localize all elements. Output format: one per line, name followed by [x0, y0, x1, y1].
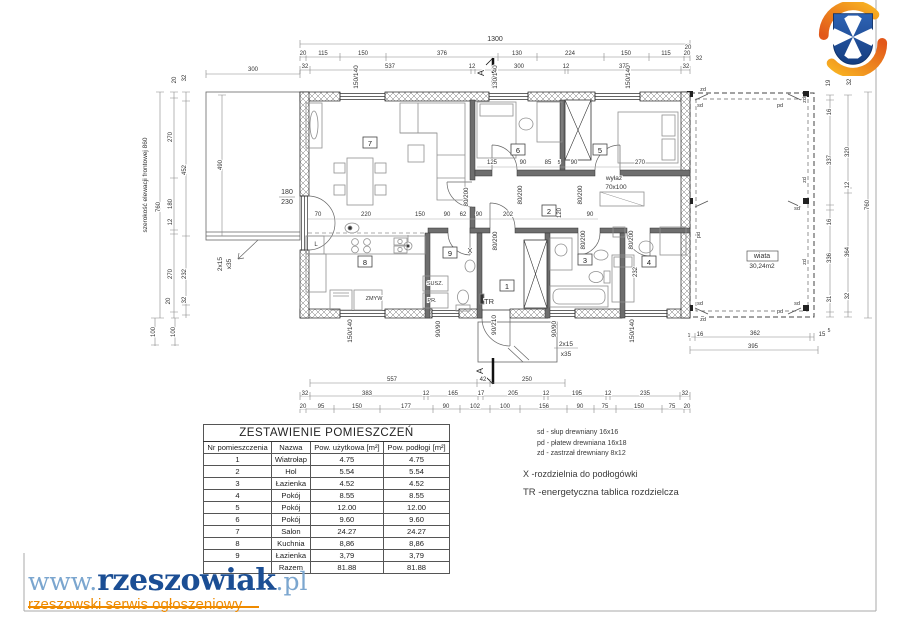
logo-www: www. — [28, 567, 97, 596]
dim-label: 102 — [470, 404, 481, 410]
dim-label: 12 — [168, 218, 174, 225]
bed — [618, 112, 678, 163]
table-cell: Pokój — [272, 490, 311, 502]
dim-label: 95 — [318, 404, 325, 410]
dim-label: pd — [777, 309, 783, 315]
table-cell: 1 — [204, 454, 272, 466]
dim-label: 90/90 — [551, 320, 558, 337]
legend-tr: TR -energetyczna tablica rozdzielcza — [523, 487, 679, 498]
dim-label: 32 — [182, 74, 188, 81]
carport-braces — [695, 94, 801, 314]
dim-label: A — [475, 368, 485, 374]
table-cell: 3,79 — [384, 550, 450, 562]
dim-label: 100 — [500, 404, 511, 410]
dim-label: X — [468, 248, 473, 255]
dim-label: 150 — [415, 212, 426, 218]
logo-name: rzeszowiak — [97, 563, 275, 598]
dim-label: sd — [794, 206, 800, 212]
dim-label: 20 — [166, 297, 172, 304]
dim-label: 42 — [480, 377, 487, 383]
dim-label: 205 — [508, 391, 519, 397]
table-cell: 8 — [204, 538, 272, 550]
table-cell: 9.60 — [310, 514, 383, 526]
dim-label: 362 — [750, 331, 761, 337]
dim-label: 20 — [684, 51, 691, 57]
dim-label: 32 — [683, 64, 690, 70]
dim-label: 90 — [476, 212, 483, 218]
dim-label: PR. — [427, 298, 437, 304]
dim-label: 90 — [443, 404, 450, 410]
dim-label: SUSZ. — [427, 281, 444, 287]
table-cell: 7 — [204, 526, 272, 538]
dim-label: 31 — [827, 295, 833, 302]
legend-x: X -rozdzielnia do podłogówki — [523, 469, 679, 479]
legend-sd: sd - słup drewniany 16x16 — [537, 428, 679, 439]
dining-table — [347, 158, 373, 205]
chair — [639, 241, 653, 253]
dim-label: ZMYW — [366, 296, 384, 302]
table-cell: 2 — [204, 466, 272, 478]
dim-label: 230 — [281, 199, 293, 206]
dim-label: 20 — [172, 76, 178, 83]
dim-label: pd — [696, 232, 702, 238]
dim-label: 32 — [696, 56, 703, 62]
table-cell: 4.52 — [310, 478, 383, 490]
legend-pd: pd - płatew drewniana 16x18 — [537, 439, 679, 450]
table-cell: Pokój — [272, 502, 311, 514]
table-cell: 9.60 — [384, 514, 450, 526]
dim-label: 20 — [685, 45, 692, 51]
dim-label: 80/200 — [492, 231, 499, 250]
room-number: 1 — [505, 282, 509, 291]
table-cell: 8.55 — [310, 490, 383, 502]
dim-label: 202 — [503, 212, 514, 218]
table-cell: 5.54 — [384, 466, 450, 478]
dim-label: 177 — [401, 404, 412, 410]
dim-label: 80/200 — [577, 185, 584, 204]
dim-label: 15 — [819, 332, 826, 338]
dim-label: zd — [700, 317, 706, 323]
table-row: 1Wiatrołap4.754.75 — [204, 454, 450, 466]
dim-label: 383 — [362, 391, 373, 397]
toilet — [458, 290, 469, 304]
dim-label: 100 — [171, 326, 177, 337]
table-cell: 4.75 — [384, 454, 450, 466]
dim-label: sd — [794, 301, 800, 307]
dim-label: x35 — [226, 258, 233, 269]
dim-label: 115 — [318, 51, 328, 57]
dim-label: sd — [697, 103, 703, 109]
table-title: ZESTAWIENIE POMIESZCZEŃ — [204, 425, 450, 442]
dim-label: 250 — [522, 377, 533, 383]
sink — [594, 250, 608, 260]
dim-label: 5 — [828, 328, 831, 334]
logo-tld: .pl — [276, 567, 308, 596]
dim-label: pd — [777, 103, 783, 109]
dim-label: szerokość elewacji frontowej 860 — [142, 137, 149, 232]
dim-label: 150/140 — [625, 65, 632, 89]
dim-label: 2x15 — [217, 257, 224, 271]
table-column-header: Nazwa — [272, 442, 311, 454]
table-row: 2Hol5.545.54 — [204, 466, 450, 478]
dimension-lines — [151, 40, 872, 413]
dim-label: 156 — [539, 404, 550, 410]
dim-label: 115 — [661, 51, 671, 57]
dim-label: 90 — [577, 404, 584, 410]
dim-label: 90 — [571, 160, 578, 166]
legend: sd - słup drewniany 16x16 pd - płatew dr… — [523, 428, 679, 498]
table-cell: 6 — [204, 514, 272, 526]
dim-label: 300 — [248, 67, 259, 73]
dim-label: 12 — [563, 64, 570, 70]
dim-label: 85 — [545, 160, 552, 166]
table-row: 9Łazienka3,793,79 — [204, 550, 450, 562]
dim-label: 270 — [168, 131, 174, 142]
dim-label: 232 — [182, 268, 188, 279]
room-number: 4 — [647, 258, 651, 267]
room-number: 3 — [583, 256, 587, 265]
dim-label: 452 — [182, 164, 188, 175]
dim-label: 150/140 — [353, 65, 360, 89]
dim-label: 130 — [512, 51, 523, 57]
dim-label: 150 — [621, 51, 632, 57]
table-cell: Pokój — [272, 514, 311, 526]
dim-label: 16 — [827, 108, 833, 115]
dim-label: 1 — [688, 333, 691, 339]
dim-label: 337 — [827, 154, 833, 165]
dim-label: wyłaz — [605, 175, 622, 182]
dim-label: 70x100 — [605, 184, 627, 191]
table-row: 4Pokój8.558.55 — [204, 490, 450, 502]
dim-label: 760 — [865, 199, 871, 210]
dim-label: 270 — [635, 160, 646, 166]
dim-label: 364 — [845, 246, 851, 257]
dim-label: 224 — [565, 51, 576, 57]
dim-label: 12 — [605, 391, 612, 397]
dim-label: wiata — [753, 253, 770, 260]
room-number: 2 — [547, 207, 551, 216]
table-header-row: Nr pomieszczeniaNazwaPow. użytkowa [m²]P… — [204, 442, 450, 454]
dim-label: 80/200 — [580, 230, 587, 249]
dim-label: 557 — [387, 377, 398, 383]
dim-label: 32 — [682, 391, 689, 397]
table-cell: Wiatrołap — [272, 454, 311, 466]
dim-label: 32 — [847, 78, 853, 85]
dim-label: 80/200 — [517, 185, 524, 204]
dim-label: 20 — [300, 404, 307, 410]
dim-label: 180 — [281, 189, 293, 196]
dim-label: 80/200 — [628, 230, 635, 249]
table-cell: 24.27 — [384, 526, 450, 538]
dim-label: 90 — [444, 212, 451, 218]
dim-label: A — [476, 70, 486, 76]
table-cell: Łazienka — [272, 478, 311, 490]
dim-label: 16 — [697, 332, 704, 338]
logo-tagline: rzeszowski serwis ogłoszeniowy — [28, 596, 307, 613]
architectural-drawing-page: 1300201151503761302241501152032537123001… — [0, 0, 900, 635]
dim-label: 220 — [361, 212, 372, 218]
table-cell: 24.27 — [310, 526, 383, 538]
coffee-table — [408, 145, 424, 162]
table-cell: 12.00 — [310, 502, 383, 514]
dim-label: L — [314, 242, 318, 248]
dim-label: 150/140 — [629, 319, 636, 343]
furniture — [306, 102, 686, 311]
dim-label: 5 — [558, 160, 561, 166]
dim-label: 1300 — [487, 36, 503, 43]
dim-label: 125 — [487, 160, 498, 166]
table-cell: 12.00 — [384, 502, 450, 514]
bed — [477, 102, 516, 158]
dim-label: zd — [700, 87, 706, 93]
carport — [687, 91, 814, 317]
floor-plan-drawing: 1300201151503761302241501152032537123001… — [0, 0, 900, 635]
dim-label: 90/210 — [491, 315, 498, 335]
table-cell: 5.54 — [310, 466, 383, 478]
dim-label: x35 — [561, 351, 572, 358]
dim-label: 232 — [633, 266, 639, 277]
table-cell: Salon — [272, 526, 311, 538]
table-cell: 3 — [204, 478, 272, 490]
carport-posts — [687, 91, 809, 311]
table-row: 5Pokój12.0012.00 — [204, 502, 450, 514]
table-cell: Hol — [272, 466, 311, 478]
room-number: 8 — [363, 258, 367, 267]
table-cell: 8,86 — [310, 538, 383, 550]
dim-label: 195 — [572, 391, 583, 397]
table-row: 3Łazienka4.524.52 — [204, 478, 450, 490]
desk — [537, 102, 562, 142]
dim-label: 30,24m2 — [749, 263, 775, 270]
dim-label: 120 — [557, 207, 563, 218]
dim-label: 90 — [587, 212, 594, 218]
entrance-stoop — [478, 322, 557, 362]
dim-label: 75 — [669, 404, 676, 410]
dim-label: 12 — [845, 181, 851, 188]
dim-label: 537 — [385, 64, 396, 70]
dim-label: 100 — [151, 326, 157, 337]
table-cell: 4.52 — [384, 478, 450, 490]
table-cell: 8,86 — [384, 538, 450, 550]
table-row: 6Pokój9.609.60 — [204, 514, 450, 526]
dim-label: 80/200 — [463, 187, 470, 206]
dim-label: 32 — [302, 391, 309, 397]
dim-label: 150 — [352, 404, 363, 410]
dim-label: 20 — [684, 404, 691, 410]
table-row: 8Kuchnia8,868,86 — [204, 538, 450, 550]
toilet — [589, 272, 603, 283]
table-cell: 5 — [204, 502, 272, 514]
room-number: 7 — [368, 139, 372, 148]
table-column-header: Pow. użytkowa [m²] — [310, 442, 383, 454]
terrace — [206, 92, 300, 259]
dim-label: zd — [802, 259, 808, 265]
dim-label: 150/140 — [347, 319, 354, 343]
chair — [519, 118, 533, 130]
dim-label: 130/140 — [492, 65, 499, 89]
dim-label: 150 — [634, 404, 645, 410]
dim-label: 19 — [826, 79, 832, 86]
dim-label: TR — [484, 297, 495, 306]
logo-underline — [28, 606, 259, 608]
table-cell: 8.55 — [384, 490, 450, 502]
room-number: 6 — [516, 146, 520, 155]
room-number: 9 — [448, 249, 452, 258]
dim-label: 75 — [602, 404, 609, 410]
table-cell: 4.75 — [310, 454, 383, 466]
dim-label: 235 — [640, 391, 651, 397]
dim-label: 20 — [300, 51, 307, 57]
dim-label: 336 — [827, 252, 833, 263]
table-cell: 4 — [204, 490, 272, 502]
table-cell: 81.88 — [384, 562, 450, 574]
table-column-header: Nr pomieszczenia — [204, 442, 272, 454]
dim-label: 320 — [845, 146, 851, 157]
sink — [465, 260, 475, 272]
table-body: 1Wiatrołap4.754.752Hol5.545.543Łazienka4… — [204, 454, 450, 574]
dim-label: 90 — [520, 160, 527, 166]
washbasin-counter — [550, 238, 572, 270]
room-schedule-table: ZESTAWIENIE POMIESZCZEŃ Nr pomieszczenia… — [203, 424, 450, 574]
dim-label: 376 — [437, 51, 448, 57]
rzeszow-crest-logo — [816, 2, 890, 76]
dim-label: sd — [697, 301, 703, 307]
dim-label: 32 — [182, 296, 188, 303]
dim-label: 32 — [845, 292, 851, 299]
corner-sofa — [400, 103, 465, 200]
dim-label: 2x15 — [559, 341, 573, 348]
dim-label: 12 — [423, 391, 430, 397]
dim-label: 300 — [514, 64, 525, 70]
dim-label: 395 — [748, 344, 759, 350]
dim-label: 12 — [543, 391, 550, 397]
table-row: 7Salon24.2724.27 — [204, 526, 450, 538]
dim-label: 180 — [168, 198, 174, 209]
dim-label: 12 — [469, 64, 476, 70]
table-cell: 3,79 — [310, 550, 383, 562]
legend-zd: zd - zastrzał drewniany 8x12 — [537, 449, 679, 460]
dim-label: 760 — [156, 201, 162, 212]
dim-label: 16 — [827, 218, 833, 225]
table-column-header: Pow. podłogi [m²] — [384, 442, 450, 454]
room-number: 5 — [598, 146, 602, 155]
table-cell: 81.88 — [310, 562, 383, 574]
table-cell: 9 — [204, 550, 272, 562]
dim-label: zd — [802, 97, 808, 103]
table-cell: Kuchnia — [272, 538, 311, 550]
dim-label: 165 — [448, 391, 459, 397]
dim-label: 70 — [315, 212, 322, 218]
dim-label: 270 — [168, 268, 174, 279]
dim-label: 90/90 — [435, 320, 442, 337]
table-cell: Łazienka — [272, 550, 311, 562]
dim-label: 150 — [358, 51, 369, 57]
dim-label: 62 — [460, 212, 467, 218]
dim-label: 32 — [302, 64, 309, 70]
dim-label: 17 — [478, 391, 485, 397]
dim-label: 490 — [218, 159, 224, 170]
dim-label: zd — [802, 177, 808, 183]
